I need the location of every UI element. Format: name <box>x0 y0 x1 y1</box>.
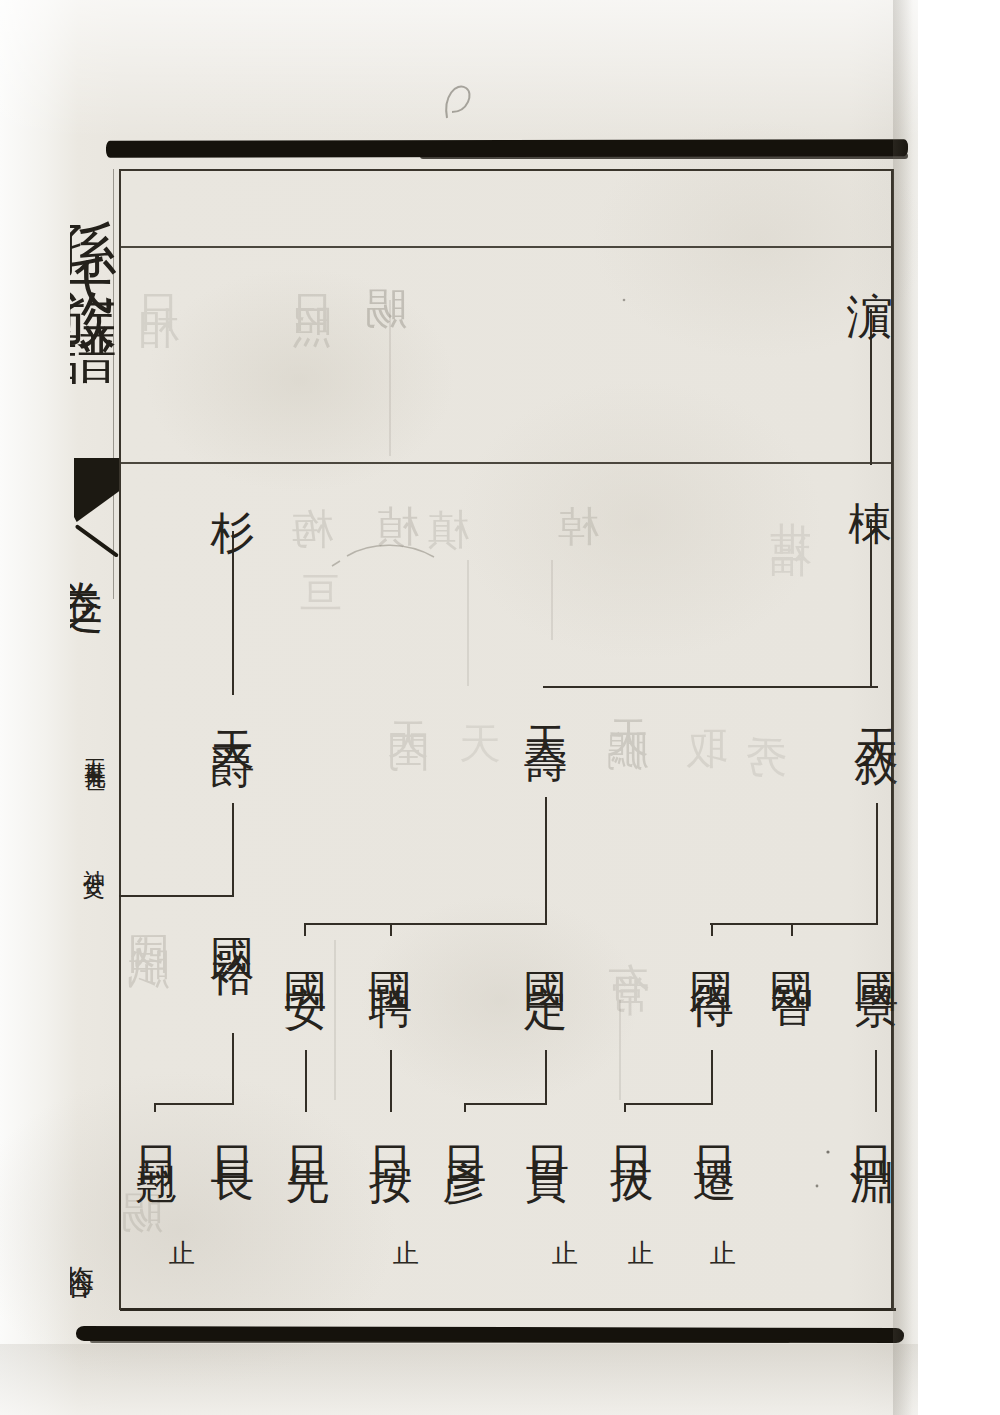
tree-connector-line <box>232 1033 234 1104</box>
person-richang: 日長 <box>211 1112 255 1138</box>
person-rian: 日按 <box>369 1112 413 1138</box>
person-tianshou: 天壽 <box>524 691 568 717</box>
tree-connector-line <box>545 797 547 924</box>
tree-connector-line <box>232 803 234 896</box>
person-guode: 國得 <box>690 937 734 963</box>
bleedthrough-text: 秀 <box>745 702 787 714</box>
tree-connector-line <box>154 1104 156 1112</box>
frame-left-border <box>119 169 121 1310</box>
paper-top-highlight <box>0 0 918 138</box>
bleedthrough-line <box>389 300 391 456</box>
bleedthrough-line <box>467 560 469 686</box>
tree-connector-line <box>624 1104 626 1112</box>
tree-connector-line <box>870 309 872 465</box>
stop-mark-rian: 止 <box>393 1240 419 1266</box>
person-shan: 杉 <box>211 476 255 489</box>
frame-bottom-line <box>120 1308 896 1311</box>
person-riyuan: 日淵 <box>850 1112 894 1138</box>
tree-connector-line <box>305 1050 307 1112</box>
tree-connector-line <box>119 895 234 897</box>
stop-mark-riba: 止 <box>628 1240 654 1266</box>
bleedthrough-text: 取 <box>685 696 727 708</box>
spine-bottom-note-clip: 梅谷 <box>70 1242 108 1312</box>
person-dong: 棟 <box>849 466 893 479</box>
bleedthrough-text: 世福 <box>769 488 811 512</box>
spine-branch-note: 神公支 <box>83 852 105 864</box>
person-guoyu: 國裕 <box>211 903 255 929</box>
bleedthrough-text: 國賦 <box>127 902 169 926</box>
tree-connector-line <box>390 1050 392 1112</box>
person-riqiao: 日翹 <box>135 1112 179 1138</box>
bleedthrough-text: 賜 <box>121 1160 163 1172</box>
tree-connector-line <box>875 1050 877 1112</box>
spine-volume-label: 卷之二 <box>70 548 103 572</box>
person-guoding: 國定 <box>524 937 568 963</box>
person-guoan: 國安 <box>284 937 328 963</box>
tree-connector-line <box>710 923 878 925</box>
tree-connector-line <box>154 1103 234 1105</box>
bleedthrough-line <box>551 560 553 640</box>
frame-row-line <box>120 462 893 464</box>
bleedthrough-text: 天鵬 <box>607 686 649 710</box>
tree-connector-line <box>545 1050 547 1104</box>
bleedthrough-text: 槙 <box>427 475 469 487</box>
spine-generation-range: 五世至九世 <box>84 742 105 757</box>
frame-header-line <box>120 246 893 248</box>
tree-connector-line <box>870 519 872 687</box>
person-bin: 濵 <box>848 253 895 266</box>
tree-connector-line <box>390 924 392 936</box>
tree-connector-line <box>464 1103 547 1105</box>
frame-top-line <box>120 169 893 171</box>
bleedthrough-text: 棹 <box>557 472 599 484</box>
scanned-page: 孫氏族譜 卷之二 五世至九世 神公支 梅谷 日相日照賜梅楨槙棹亘世福天閏天鵬天取… <box>0 0 1000 1415</box>
top-ink-band-thick <box>420 153 908 159</box>
person-guopin: 國聘 <box>369 937 413 963</box>
person-guozhi: 國智 <box>770 937 814 963</box>
tree-connector-line <box>791 924 793 936</box>
person-riguan: 日貫 <box>526 1112 570 1138</box>
bleedthrough-text: 賜 <box>365 256 407 268</box>
bleedthrough-text: 梅 <box>291 475 333 487</box>
bleedthrough-text: 日相 <box>137 262 179 286</box>
tree-connector-line <box>711 1050 713 1104</box>
tree-connector-line <box>876 803 878 924</box>
bleedthrough-text: 天閏 <box>387 688 429 712</box>
person-riba: 日拔 <box>610 1112 654 1138</box>
bottom-ink-band-thick <box>90 1339 790 1343</box>
paper-bottom-shading <box>0 1344 918 1415</box>
tree-connector-line <box>304 924 306 936</box>
person-riyan: 日彥 <box>443 1112 487 1138</box>
person-tianjue: 天爵 <box>211 696 255 722</box>
tree-connector-line <box>464 1104 466 1112</box>
bleedthrough-text: 亘 <box>299 542 341 554</box>
stop-mark-riqiao: 止 <box>169 1240 195 1266</box>
bleedthrough-line <box>619 1000 621 1100</box>
bleedthrough-text: 有常 <box>607 930 649 954</box>
person-rixian: 日先 <box>286 1112 330 1138</box>
tree-connector-line <box>304 923 547 925</box>
tree-connector-line <box>624 1103 713 1105</box>
bleedthrough-text: 日照 <box>291 262 333 286</box>
tree-connector-line <box>711 924 713 936</box>
tree-connector-line <box>232 531 234 695</box>
page-right-edge-shadow <box>893 0 918 1415</box>
spine-volume-clip: 卷之二 <box>70 548 118 698</box>
spine-book-title: 孫氏族譜 <box>70 172 118 308</box>
person-riqian: 日遷 <box>693 1112 737 1138</box>
tree-connector-line <box>543 686 878 688</box>
stop-mark-riguan: 止 <box>552 1240 578 1266</box>
bleedthrough-text: 天 <box>459 692 501 704</box>
spine-bottom-note: 梅谷 <box>70 1242 94 1250</box>
stop-mark-riqian: 止 <box>710 1240 736 1266</box>
bleedthrough-text: 楨 <box>377 472 419 484</box>
bleedthrough-line <box>334 940 336 1100</box>
